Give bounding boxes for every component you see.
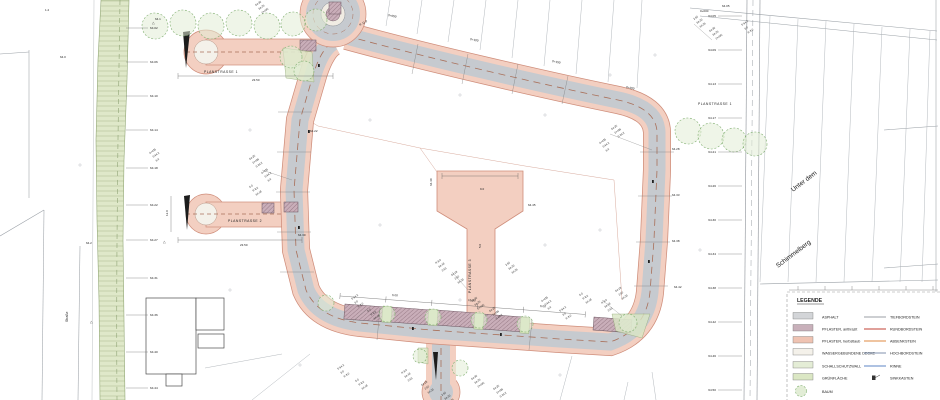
annotation-cluster: S 64.2 [350, 293, 359, 301]
annotation: 64.2 [86, 241, 92, 245]
legend-label-absenkstein: ABSENKSTEIN [890, 340, 916, 344]
elevation-label: 64.40 [150, 350, 158, 354]
legend-label-tiefbordstein: TIEFBORDSTEIN [890, 316, 920, 320]
parcel-line [252, 354, 310, 400]
annotation-cluster: 6.0 [354, 377, 360, 383]
building-outline [146, 298, 196, 374]
parcel-line [652, 372, 656, 400]
tree [318, 295, 334, 311]
boundary-line [884, 264, 938, 268]
annotation: 64.0 [60, 55, 66, 59]
road-edge [757, 0, 760, 400]
label-planstrasse-mid: PLANSTRASSE 2 [228, 219, 262, 223]
tree [743, 132, 767, 156]
annotation-cluster: S 64.2 [336, 363, 345, 371]
legend-swatch-wassergebunden [793, 349, 813, 356]
survey-cross [458, 93, 462, 97]
elevation-label: 64.21 [708, 150, 716, 154]
road-edge [744, 0, 747, 400]
tree [619, 314, 637, 332]
parcel-line [844, 24, 854, 282]
existing-road-strip [744, 0, 760, 400]
legend-label-pflaster-anthrazit: PFLASTER, anthrazit [822, 328, 857, 332]
legend-tree-symbol [796, 386, 807, 397]
tree [675, 118, 701, 144]
parking-bay [300, 40, 316, 51]
boundary-line [78, 246, 80, 400]
elevation-label: 64.44 [150, 386, 158, 390]
lot-line [614, 180, 622, 300]
parcel-line [417, 0, 422, 34]
elevation-label: 64.17 [708, 116, 716, 120]
parcel-line [816, 21, 826, 282]
parcel-line [608, 0, 614, 82]
parking-bay [262, 203, 274, 213]
parcel-line [637, 0, 642, 88]
survey-marker: △ [163, 240, 167, 244]
legend-swatch-pflaster-anthrazit [793, 325, 813, 332]
legend-label-rinne: RINNE [890, 365, 902, 369]
green-strip [96, 0, 129, 400]
plan-drawing: △△△ 64.0264.0664.1064.1464.1864.2264.276… [0, 0, 940, 400]
survey-cross [558, 373, 562, 377]
elevation-label: 64.22 [150, 203, 158, 207]
elevation-label: 64.13 [708, 82, 716, 86]
legend-label-schallschutzwall: SCHALLSCHUTZWALL [822, 365, 861, 369]
annotation: 9.0 [480, 187, 485, 191]
site-plan-sheet: △△△ 64.0264.0664.1064.1464.1864.2264.276… [0, 0, 940, 400]
annotation: 64.38 [672, 239, 680, 243]
building-outline [166, 374, 182, 386]
tree [425, 309, 441, 325]
survey-cross [698, 248, 702, 252]
lot-line [420, 148, 525, 166]
sinkkasten-mark [652, 180, 654, 183]
elevation-label: 64.31 [150, 276, 158, 280]
boundary-line [0, 210, 44, 236]
annotation: 23.50 [252, 78, 260, 82]
boundary-line [0, 52, 29, 54]
annotation: 64.1 [155, 17, 161, 21]
tree [254, 13, 280, 39]
annotation: 5.0 [478, 243, 482, 248]
tree [517, 316, 533, 332]
annotation: 0+000 [700, 9, 709, 13]
parcel-line [448, 0, 454, 42]
survey-cross [653, 53, 657, 57]
survey-cross [543, 243, 547, 247]
annotation-cluster: 6.0 [155, 157, 161, 163]
annotation: 6.00 [392, 293, 398, 297]
elevation-label: 64.34 [708, 252, 716, 256]
elevation-label: 64.30 [708, 218, 716, 222]
parcel-line [205, 354, 282, 368]
building-outline [196, 298, 224, 330]
legend-label-sinkkasten: SINKKASTEN [890, 377, 914, 381]
tree [379, 306, 395, 322]
parcel-line [788, 19, 798, 282]
parking-bay [329, 2, 341, 14]
annotation: 64.30 [298, 233, 306, 237]
tree [170, 10, 196, 36]
lot-line [420, 148, 437, 172]
label-schimmelberg: Schimmelberg [775, 239, 813, 270]
sinkkasten-mark [412, 327, 414, 330]
annotation-cluster: 6.0 [561, 311, 567, 317]
building-outline [198, 334, 224, 348]
elevation-label: 64.14 [150, 128, 158, 132]
bulb-inner [195, 203, 217, 225]
legend-box [787, 292, 940, 400]
annotation: 23.50 [240, 243, 248, 247]
parcel-line [560, 356, 572, 400]
parcel-line [512, 0, 518, 58]
elevation-label: 64.26 [708, 184, 716, 188]
survey-cross [78, 163, 82, 167]
elevation-label: 64.18 [150, 166, 158, 170]
parcel-line [480, 0, 486, 50]
annotation: 1.2 [45, 8, 50, 12]
legend-swatch-asphalt [793, 313, 813, 320]
annotation: 64.28 [672, 147, 680, 151]
sinkkasten-mark [318, 64, 320, 67]
lot-line [318, 126, 420, 148]
legend-label-baum: BAUM [822, 390, 833, 394]
annotation-cluster: 6.0 [248, 183, 254, 189]
legend-title: LEGENDE [797, 298, 823, 304]
elevation-label: 64.46 [708, 354, 716, 358]
tree [471, 312, 487, 328]
label-street-left: Straße [65, 311, 69, 322]
legend-label-gruenflaeche: GRÜNFLÄCHE [822, 377, 848, 381]
parcel-line [900, 29, 910, 282]
survey-cross [378, 223, 382, 227]
annotation: 64.40 [429, 178, 433, 186]
tree [698, 123, 724, 149]
label-planstrasse-right: PLANSTRASSE 1 [698, 102, 732, 106]
parcel-line [872, 27, 882, 282]
legend-label-asphalt: ASPHALT [822, 316, 839, 320]
boundary-line [42, 210, 44, 400]
sinkkasten-mark [648, 260, 650, 263]
elevation-label: 64.50 [708, 388, 716, 392]
elevation-label: 64.09 [708, 48, 716, 52]
elevation-label: 64.05 [708, 14, 716, 18]
parcel-line [624, 382, 628, 400]
annotation: 0+050 [388, 13, 397, 19]
legend: LEGENDE ASPHALT PFLASTER, anthrazit PFLA… [787, 290, 940, 400]
annotation-cluster: 6.0 [605, 147, 611, 153]
legend-symbol-sinkkasten [872, 376, 876, 381]
road-centerline [750, 0, 753, 400]
annotation: 12.0 [165, 210, 169, 216]
elevation-label: 64.38 [708, 286, 716, 290]
legend-label-hochbordstein: HOCHBORDSTEIN [890, 352, 923, 356]
survey-cross [598, 228, 602, 232]
tree [226, 10, 252, 36]
survey-cross [298, 363, 302, 367]
annotation-cluster: 6.0 [578, 291, 584, 297]
survey-cross [228, 288, 232, 292]
survey-cross [543, 113, 547, 117]
elevation-label: 64.42 [708, 320, 716, 324]
boundary-line [760, 280, 938, 284]
annotation-cluster: 6.0 [339, 369, 345, 375]
annotation-cluster: 6.0 [267, 177, 273, 183]
elevation-label: 64.06 [150, 60, 158, 64]
annotation: 64.22 [310, 129, 318, 133]
annotation: 64.42 [674, 285, 682, 289]
survey-marker: △ [90, 320, 94, 324]
tree [294, 61, 314, 81]
label-planstrasse-top: PLANSTRASSE 1 [204, 70, 238, 74]
parcel-line [544, 0, 550, 66]
label-unter-dem: Unter dem [790, 170, 818, 194]
annotation: 64.45 [528, 203, 536, 207]
tree [452, 360, 468, 376]
tree [198, 13, 224, 39]
survey-cross [458, 298, 462, 302]
annotation: 0+150 [552, 59, 561, 65]
tree [722, 128, 746, 152]
survey-cross [368, 118, 372, 122]
annotation-cluster: 6.0 [353, 299, 359, 305]
label-planstrasse-path: PLANSTRASSE 3 [468, 259, 472, 293]
boundary-line [700, 16, 937, 40]
tree [413, 349, 427, 363]
legend-swatch-gruenflaeche [793, 374, 813, 381]
noise-wall-strip [92, 0, 129, 400]
annotation-cluster: 6.0 [547, 305, 553, 311]
elevation-label: 64.10 [150, 94, 158, 98]
lot-line [525, 166, 614, 180]
annotation: 64.05 [722, 4, 730, 8]
parcel-line [576, 0, 582, 74]
sinkkasten-mark [500, 333, 502, 336]
annotation: 0+100 [470, 37, 479, 43]
elevation-label: 64.36 [150, 313, 158, 317]
legend-swatch-schallschutzwall [793, 362, 813, 369]
boundary-line [884, 126, 938, 130]
elevation-ticks-right: 64.0564.0964.1364.1764.2164.2664.3064.34… [708, 14, 742, 392]
annotation: 64.33 [672, 193, 680, 197]
sinkkasten-mark [298, 226, 300, 229]
annotation-cluster: S 64.2 [558, 305, 567, 313]
legend-swatch-pflaster-herbstlaub [793, 337, 813, 344]
buildings [146, 298, 224, 386]
tree [281, 12, 305, 36]
annotation-cluster: 6.0 [743, 25, 749, 31]
parking-bay [284, 202, 298, 212]
legend-label-pflaster-herbstlaub: PFLASTER, herbstlaub [822, 340, 860, 344]
parcel-line [922, 31, 930, 282]
tree [305, 9, 327, 31]
strip-edge-line [92, 0, 94, 400]
elevation-label: 64.02 [150, 26, 158, 30]
legend-label-rundbordstein: RUNDBORDSTEIN [890, 328, 923, 332]
elevation-label: 64.27 [150, 238, 158, 242]
survey-cross [248, 128, 252, 132]
